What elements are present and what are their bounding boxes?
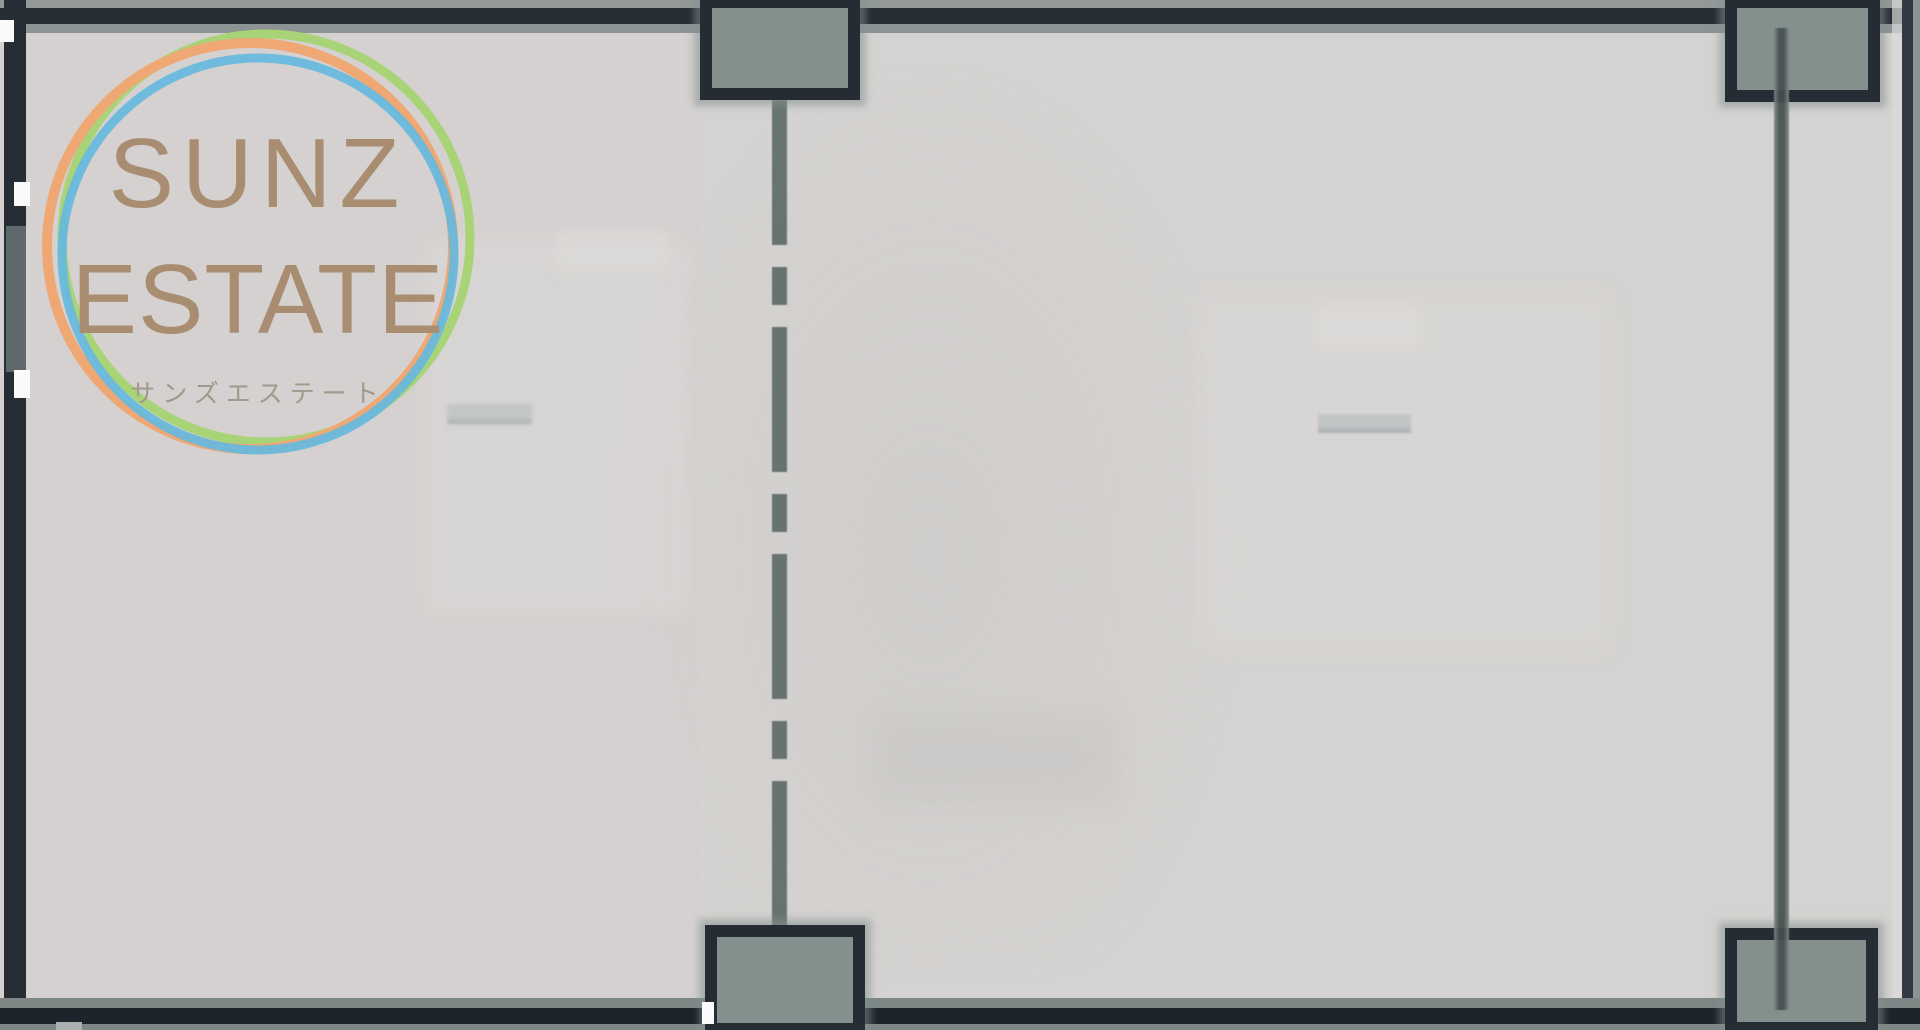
wall-notch bbox=[14, 370, 30, 398]
left-wall-window bbox=[6, 226, 26, 372]
wall-notch bbox=[0, 20, 14, 42]
column-top-left bbox=[700, 0, 860, 100]
logo-title-line1: SUNZ bbox=[38, 124, 478, 222]
logo-badge: SUNZ ESTATE サンズエステート bbox=[38, 26, 478, 466]
logo-subtitle-kana: サンズエステート bbox=[38, 382, 478, 407]
right-wall-line bbox=[1774, 28, 1789, 1010]
column-top-right bbox=[1725, 0, 1880, 102]
faint-furniture-block bbox=[1200, 298, 1605, 646]
top-wall-outer-band bbox=[0, 0, 1920, 8]
floorplan-image: SUNZ ESTATE サンズエステート bbox=[0, 0, 1920, 1030]
right-wall-outer-band bbox=[1913, 0, 1920, 1030]
bottom-wall-outer-band bbox=[0, 1024, 1920, 1030]
right-wall bbox=[1902, 0, 1913, 1030]
left-wall bbox=[4, 0, 26, 1030]
top-wall bbox=[0, 8, 1920, 24]
wall-notch bbox=[14, 182, 30, 206]
column-bottom-right bbox=[1725, 928, 1878, 1030]
logo-title-line2: ESTATE bbox=[38, 250, 478, 348]
column-bottom-left bbox=[705, 925, 865, 1030]
faint-floor-shadow bbox=[870, 712, 1120, 807]
blurred-room-tint bbox=[640, 80, 1220, 940]
faint-fixture-bar bbox=[1318, 414, 1411, 433]
wall-notch bbox=[702, 1002, 714, 1024]
faint-furniture-block bbox=[556, 230, 668, 270]
center-dashed-guideline bbox=[772, 100, 787, 928]
wall-notch bbox=[56, 1022, 82, 1030]
bottom-wall-inner-band bbox=[0, 998, 1920, 1008]
bottom-wall bbox=[0, 1008, 1920, 1024]
faint-furniture-block bbox=[1316, 308, 1422, 346]
